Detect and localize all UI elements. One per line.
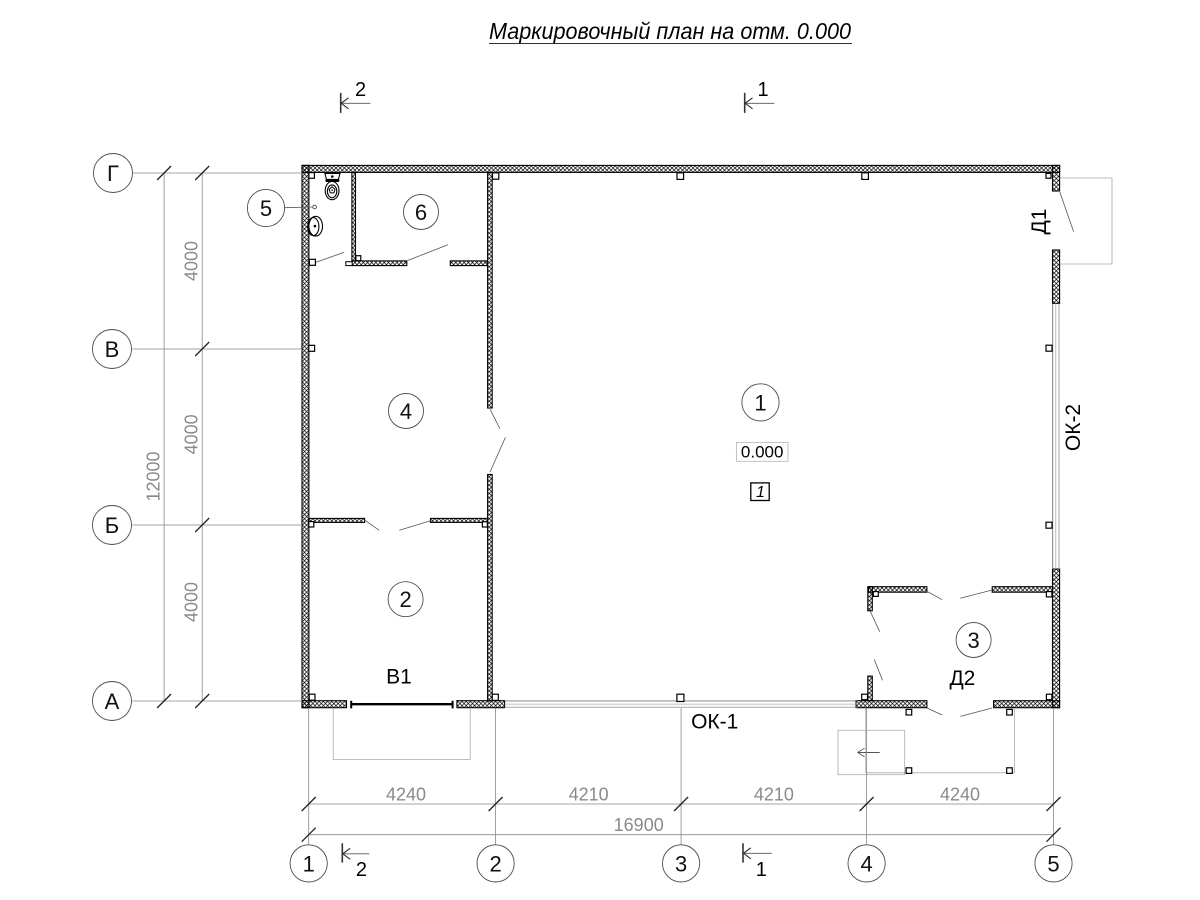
svg-text:4210: 4210 bbox=[569, 785, 609, 805]
svg-text:2: 2 bbox=[489, 851, 501, 876]
svg-text:4240: 4240 bbox=[940, 785, 980, 805]
svg-text:Г: Г bbox=[107, 161, 119, 186]
svg-text:4000: 4000 bbox=[182, 582, 202, 622]
svg-text:ОК-2: ОК-2 bbox=[1062, 404, 1085, 451]
svg-text:В: В bbox=[105, 337, 120, 362]
svg-text:2: 2 bbox=[356, 859, 367, 881]
svg-text:5: 5 bbox=[260, 196, 272, 221]
svg-text:4: 4 bbox=[400, 399, 412, 424]
svg-text:1: 1 bbox=[303, 851, 315, 876]
svg-text:4000: 4000 bbox=[182, 414, 202, 454]
svg-text:4240: 4240 bbox=[386, 785, 426, 805]
svg-text:Б: Б bbox=[105, 513, 119, 538]
svg-text:5: 5 bbox=[1047, 851, 1059, 876]
svg-text:А: А bbox=[105, 689, 120, 714]
svg-text:1: 1 bbox=[754, 390, 766, 415]
svg-text:В1: В1 bbox=[386, 666, 412, 689]
svg-text:6: 6 bbox=[415, 200, 427, 225]
svg-text:4210: 4210 bbox=[754, 785, 794, 805]
svg-text:0.000: 0.000 bbox=[741, 443, 784, 462]
svg-text:4: 4 bbox=[860, 851, 872, 876]
svg-text:2: 2 bbox=[355, 79, 366, 101]
svg-text:1: 1 bbox=[756, 859, 767, 881]
svg-text:12000: 12000 bbox=[144, 451, 164, 501]
svg-text:ОК-1: ОК-1 bbox=[691, 711, 738, 734]
svg-text:3: 3 bbox=[967, 628, 979, 653]
svg-text:2: 2 bbox=[399, 587, 411, 612]
svg-text:3: 3 bbox=[675, 851, 687, 876]
svg-text:Маркировочный план на отм. 0.0: Маркировочный план на отм. 0.000 bbox=[489, 18, 851, 44]
svg-text:1: 1 bbox=[757, 79, 768, 101]
svg-text:Д2: Д2 bbox=[949, 667, 975, 690]
svg-text:Д1: Д1 bbox=[1028, 209, 1051, 235]
svg-text:1: 1 bbox=[756, 484, 765, 501]
svg-text:4000: 4000 bbox=[182, 241, 202, 281]
svg-text:16900: 16900 bbox=[614, 815, 664, 835]
